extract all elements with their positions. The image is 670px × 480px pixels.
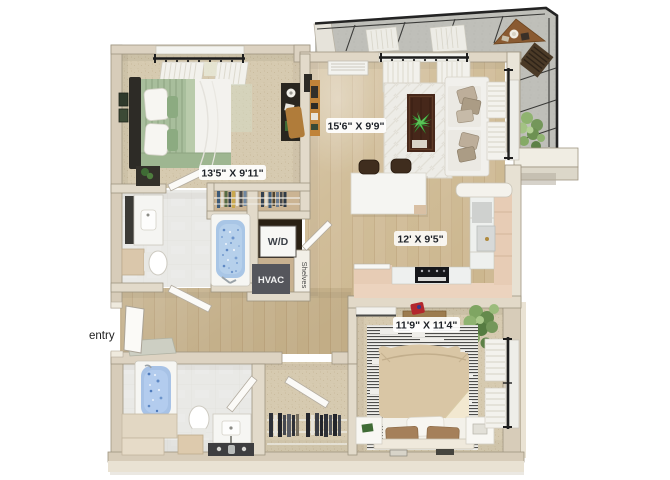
svg-text:Shelves: Shelves <box>300 262 309 289</box>
svg-text:entry: entry <box>89 330 115 342</box>
svg-text:W/D: W/D <box>268 236 289 248</box>
svg-text:HVAC: HVAC <box>258 275 284 286</box>
svg-text:15'6" X 9'9": 15'6" X 9'9" <box>328 121 385 133</box>
svg-text:11'9" X 11'4": 11'9" X 11'4" <box>396 320 458 332</box>
svg-text:13'5" X 9'11": 13'5" X 9'11" <box>201 168 263 180</box>
svg-text:12' X 9'5": 12' X 9'5" <box>397 234 443 246</box>
